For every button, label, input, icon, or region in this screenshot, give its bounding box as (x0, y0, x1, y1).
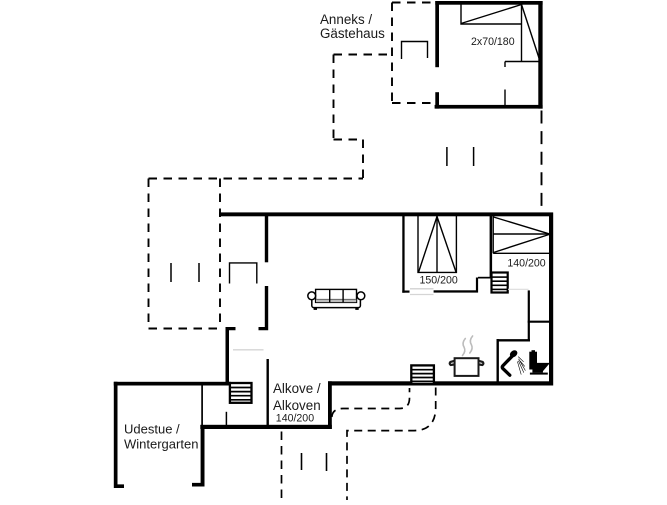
svg-text:150/200: 150/200 (420, 275, 458, 287)
svg-text:Alkoven: Alkoven (273, 398, 321, 413)
svg-text:Gästehaus: Gästehaus (320, 26, 385, 41)
svg-text:Anneks /: Anneks / (320, 12, 372, 27)
svg-text:Alkove /: Alkove / (273, 381, 321, 396)
svg-text:140/200: 140/200 (507, 258, 545, 270)
svg-text:Udestue /: Udestue / (124, 422, 180, 437)
svg-text:140/200: 140/200 (276, 413, 314, 425)
svg-text:2x70/180: 2x70/180 (471, 36, 515, 48)
svg-text:Wintergarten: Wintergarten (124, 437, 198, 452)
